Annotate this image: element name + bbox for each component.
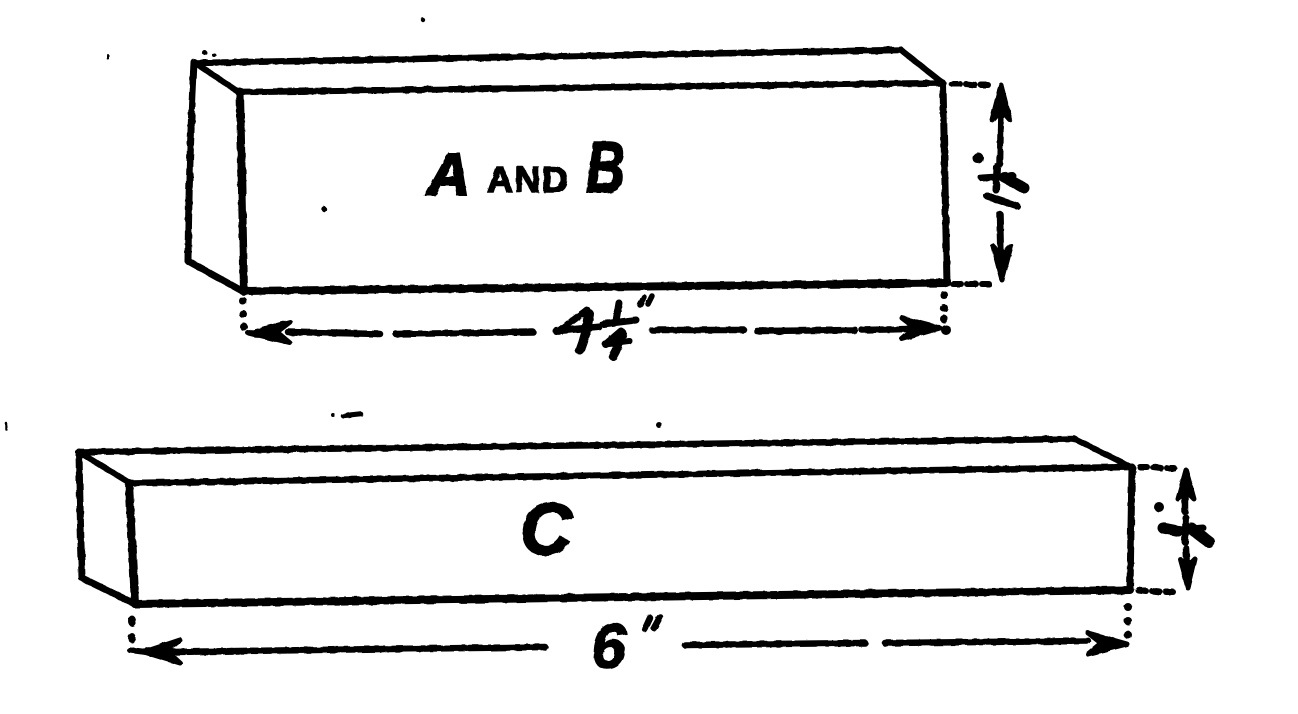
svg-text:A: A [425,141,470,208]
svg-text:6: 6 [591,612,627,682]
svg-text:AND: AND [487,159,570,200]
svg-text:B: B [586,128,625,208]
svg-text:C: C [520,490,573,570]
